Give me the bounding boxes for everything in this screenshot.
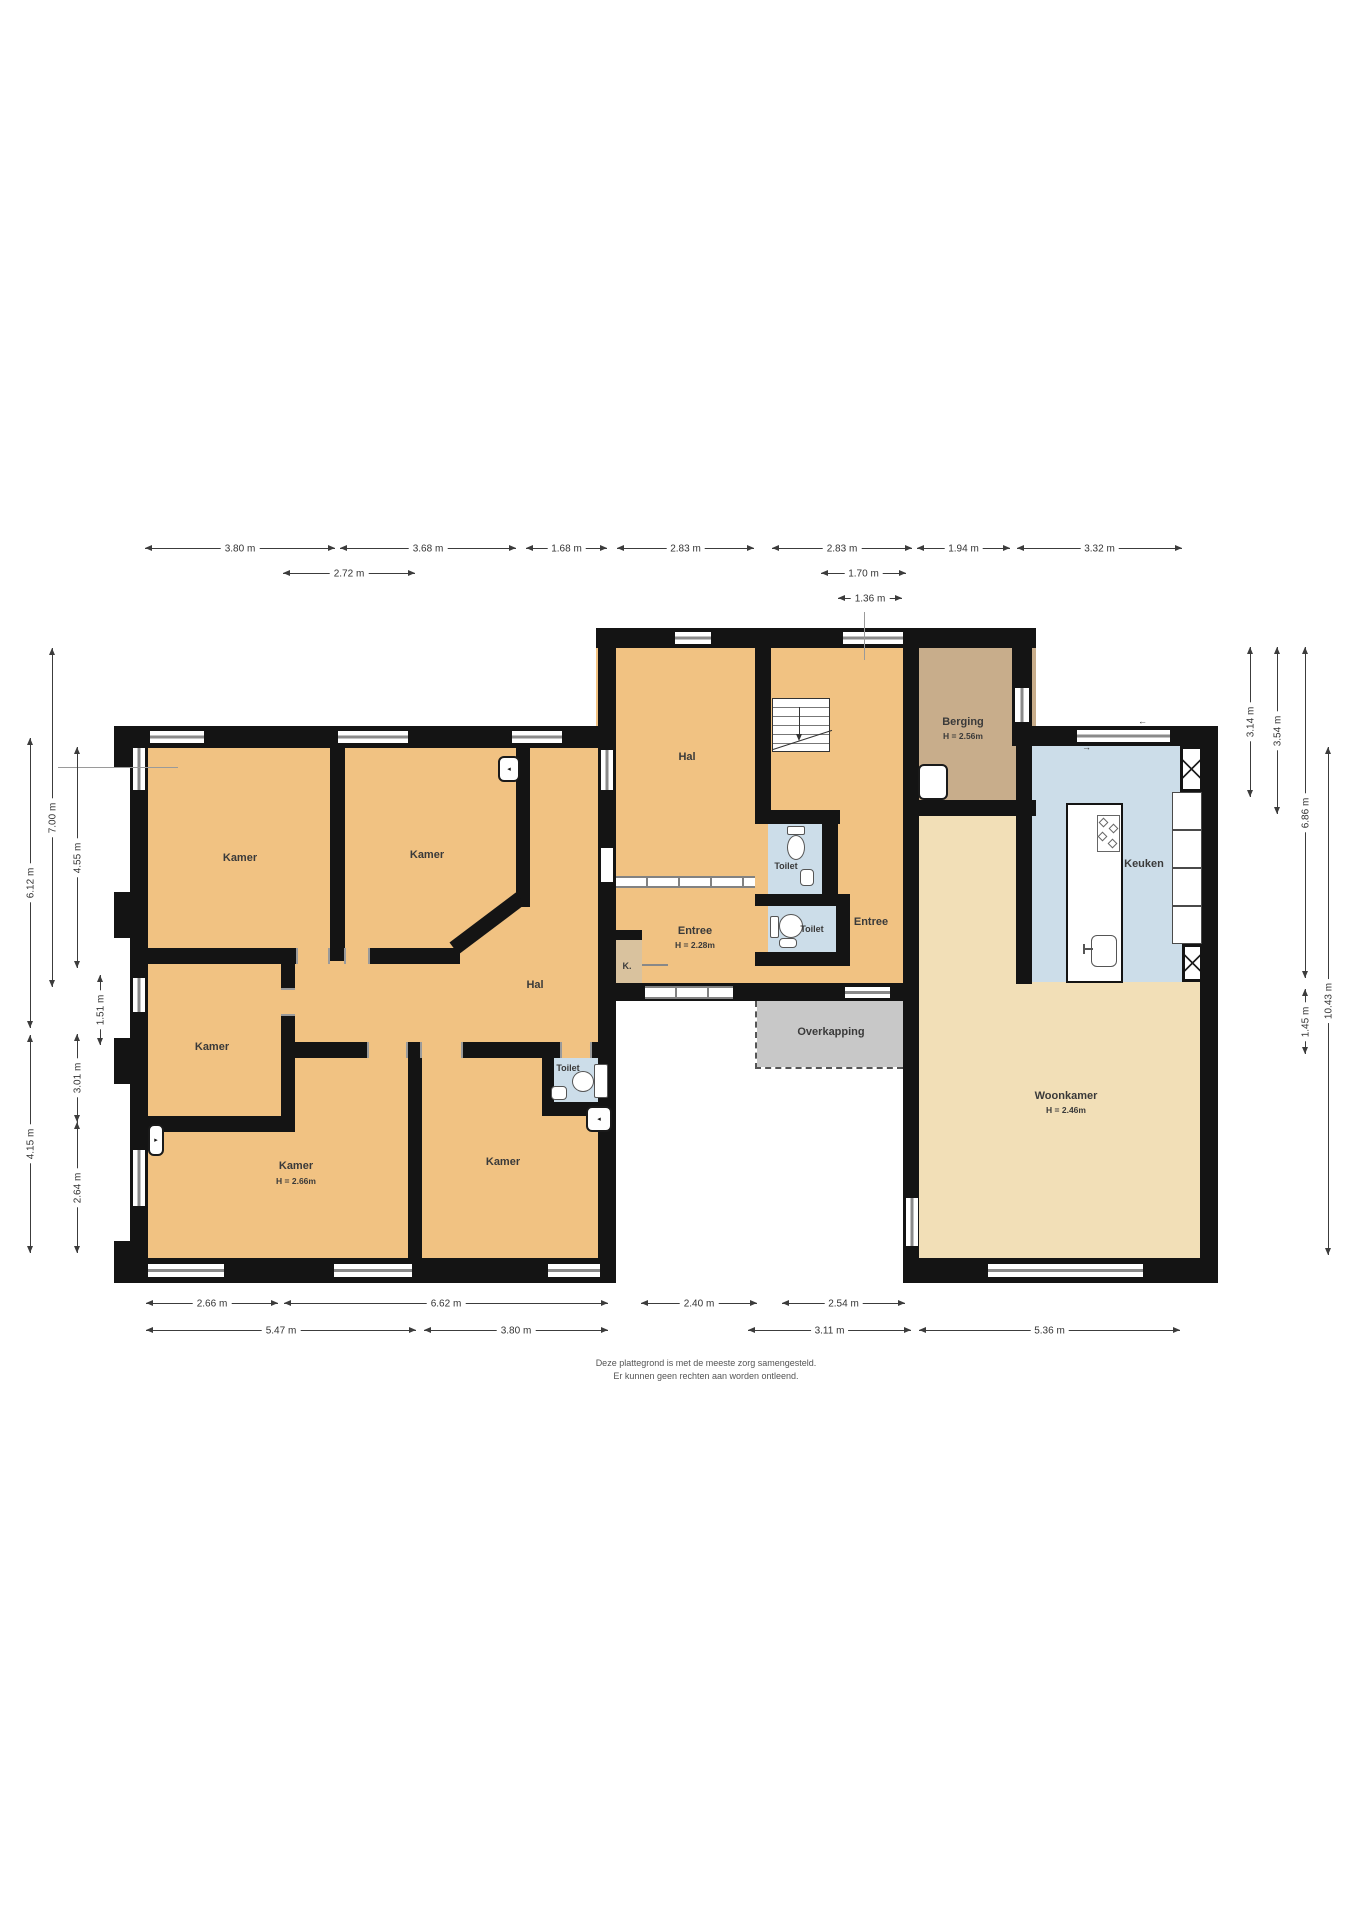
dimension-label: 1.68 m <box>547 544 586 555</box>
stair-direction-arrow-icon <box>799 707 800 735</box>
dimension-label: 3.32 m <box>1080 544 1119 555</box>
dimension: 6.86 m <box>1305 647 1306 978</box>
door-opening <box>601 848 613 882</box>
window <box>338 731 408 743</box>
dimension-label: 6.12 m <box>26 864 37 903</box>
room-label-entree: Entree <box>678 925 712 937</box>
dimension-label: 6.62 m <box>427 1299 466 1310</box>
disclaimer-line-1: Deze plattegrond is met de meeste zorg s… <box>546 1357 866 1370</box>
window <box>150 731 204 743</box>
room-label-kamer: Kamer <box>410 849 444 861</box>
disclaimer-line-2: Er kunnen geen rechten aan worden ontlee… <box>546 1370 866 1383</box>
stair-cut-line <box>773 730 832 750</box>
wall <box>408 1042 422 1258</box>
dimension: 4.15 m <box>30 1035 31 1253</box>
shaft-icon <box>1180 746 1203 792</box>
dimension: 1.70 m <box>821 573 906 574</box>
dimension-label: 7.00 m <box>48 798 59 837</box>
window <box>334 1264 412 1277</box>
dimension: 1.45 m <box>1305 989 1306 1054</box>
room-label-kast: K. <box>623 961 632 971</box>
kitchen-cabinet <box>1172 868 1202 906</box>
dimension: 2.40 m <box>641 1303 757 1304</box>
room-label-overkapping: Overkapping <box>797 1026 864 1038</box>
wall <box>330 746 345 961</box>
room-height-label: H = 2.56m <box>943 731 983 741</box>
door-opening <box>281 988 295 1016</box>
toilet-tank-icon <box>594 1064 608 1098</box>
window <box>512 731 562 743</box>
stove-icon <box>1097 815 1120 852</box>
leader-line <box>58 767 178 768</box>
toilet-bowl-icon <box>572 1071 594 1092</box>
door-icon: ◂ <box>498 756 520 782</box>
dimension: 4.55 m <box>77 747 78 968</box>
wall <box>755 648 771 824</box>
wall-pier <box>114 892 148 938</box>
disclaimer: Deze plattegrond is met de meeste zorg s… <box>546 1357 866 1383</box>
wall <box>370 948 460 964</box>
dimension-label: 6.86 m <box>1301 793 1312 832</box>
wall <box>147 1116 295 1132</box>
dimension-label: 10.43 m <box>1324 979 1335 1023</box>
dimension: 3.32 m <box>1017 548 1182 549</box>
glass-partition <box>616 876 755 888</box>
dimension-label: 3.54 m <box>1273 711 1284 750</box>
dimension-label: 2.83 m <box>823 544 862 555</box>
toilet-bowl-icon <box>787 835 805 860</box>
dimension: 2.83 m <box>617 548 754 549</box>
room-height-label: H = 2.66m <box>276 1176 316 1186</box>
room-label-hal: Hal <box>678 751 695 763</box>
kitchen-cabinet <box>1172 792 1202 830</box>
dimension: 5.36 m <box>919 1330 1180 1331</box>
window <box>133 1150 145 1206</box>
dimension: 1.36 m <box>838 598 902 599</box>
dimension-label: 4.15 m <box>26 1125 37 1164</box>
window <box>601 750 613 790</box>
room-label-keuken: Keuken <box>1124 858 1164 870</box>
dimension-label: 1.36 m <box>851 594 890 605</box>
dimension-label: 2.40 m <box>680 1299 719 1310</box>
wall <box>596 628 1036 648</box>
door-opening <box>560 1042 592 1058</box>
wall-pier <box>114 1038 148 1084</box>
closet-door-line <box>642 964 668 966</box>
door-opening <box>296 948 330 964</box>
burner-icon <box>1109 824 1119 834</box>
room-label-hal: Hal <box>526 979 543 991</box>
toilet-tank-icon <box>770 916 779 938</box>
dimension: 1.94 m <box>917 548 1010 549</box>
dimension: 2.66 m <box>146 1303 278 1304</box>
wall <box>755 952 850 966</box>
window <box>148 1264 224 1277</box>
room-label-woonkamer: Woonkamer <box>1035 1090 1098 1102</box>
dimension: 7.00 m <box>52 648 53 987</box>
wall <box>1200 726 1218 1283</box>
dimension-label: 1.51 m <box>96 991 107 1030</box>
shaft-icon <box>1182 944 1203 982</box>
wall <box>1016 746 1032 984</box>
dimension: 2.72 m <box>283 573 415 574</box>
dimension: 3.68 m <box>340 548 516 549</box>
door-icon <box>918 764 948 800</box>
dimension: 6.12 m <box>30 738 31 1028</box>
dimension: 1.68 m <box>526 548 607 549</box>
kitchen-sink-icon <box>1091 935 1117 967</box>
faucet-icon <box>1083 944 1085 954</box>
dimension: 3.80 m <box>145 548 335 549</box>
dimension: 1.51 m <box>100 975 101 1045</box>
sliding-door-arrow-icon: ← <box>1138 716 1147 726</box>
door-icon: ▸ <box>148 1124 164 1156</box>
wall <box>822 810 838 906</box>
dimension: 6.62 m <box>284 1303 608 1304</box>
room-label-entree: Entree <box>854 916 888 928</box>
room-label-kamer: Kamer <box>223 852 257 864</box>
window <box>548 1264 600 1277</box>
wall <box>616 930 642 940</box>
dimension-label: 1.45 m <box>1301 1002 1312 1041</box>
room-height-label: H = 2.46m <box>1046 1105 1086 1115</box>
corner-sink-icon <box>800 869 814 886</box>
dimension-label: 3.80 m <box>497 1326 536 1337</box>
door-opening <box>420 1042 463 1058</box>
dimension-label: 2.83 m <box>666 544 705 555</box>
wall <box>755 894 840 906</box>
window <box>133 978 145 1012</box>
dimension-label: 3.68 m <box>409 544 448 555</box>
dimension: 3.01 m <box>77 1034 78 1122</box>
wall-pier <box>114 1241 148 1283</box>
dimension: 2.64 m <box>77 1122 78 1253</box>
dimension-label: 3.80 m <box>221 544 260 555</box>
french-door <box>645 986 733 999</box>
room-height-label: H = 2.28m <box>675 940 715 950</box>
room-label-kamer: Kamer <box>195 1041 229 1053</box>
window <box>845 987 890 998</box>
sliding-door-arrow-icon: → <box>1082 742 1091 752</box>
dimension: 3.14 m <box>1250 647 1251 797</box>
window <box>675 632 711 644</box>
wall <box>903 628 919 1283</box>
window <box>843 632 903 644</box>
kitchen-cabinet <box>1172 906 1202 944</box>
dimension: 3.54 m <box>1277 647 1278 814</box>
room-label-kamer: Kamer <box>279 1160 313 1172</box>
dimension-label: 5.47 m <box>262 1326 301 1337</box>
dimension-label: 2.64 m <box>73 1168 84 1207</box>
window <box>133 748 145 790</box>
leader-line <box>864 612 865 660</box>
room-label-berging: Berging <box>942 716 984 728</box>
door-icon: ◂ <box>586 1106 612 1132</box>
room-label-toilet: Toilet <box>774 861 797 871</box>
corner-sink-icon <box>779 938 797 948</box>
burner-icon <box>1098 832 1108 842</box>
dimension-label: 5.36 m <box>1030 1326 1069 1337</box>
dimension-label: 2.66 m <box>193 1299 232 1310</box>
kitchen-cabinet <box>1172 830 1202 868</box>
window <box>906 1198 918 1246</box>
dimension: 10.43 m <box>1328 747 1329 1255</box>
west-wing-floor <box>130 728 616 1283</box>
sliding-door <box>1077 730 1170 742</box>
wall <box>281 964 295 1116</box>
dimension-label: 1.94 m <box>944 544 983 555</box>
toilet-tank-icon <box>787 826 805 835</box>
dimension-label: 2.54 m <box>824 1299 863 1310</box>
burner-icon <box>1099 818 1109 828</box>
wall-shared <box>598 628 616 1283</box>
dimension-label: 3.01 m <box>73 1059 84 1098</box>
corner-sink-icon <box>551 1086 567 1100</box>
room-label-toilet: Toilet <box>800 924 823 934</box>
dimension-label: 3.11 m <box>811 1326 849 1337</box>
dimension: 3.80 m <box>424 1330 608 1331</box>
window <box>1015 688 1029 722</box>
dimension-label: 3.14 m <box>1246 703 1257 742</box>
burner-icon <box>1108 839 1118 849</box>
dimension: 5.47 m <box>146 1330 416 1331</box>
floorplan-page: ← → ◂ ▸ ◂ Kamer <box>0 0 1358 1920</box>
dimension: 3.11 m <box>748 1330 911 1331</box>
room-label-kamer: Kamer <box>486 1156 520 1168</box>
dimension-label: 1.70 m <box>844 569 883 580</box>
door-opening <box>344 948 370 964</box>
dimension-label: 2.72 m <box>330 569 369 580</box>
dimension: 2.54 m <box>782 1303 905 1304</box>
dimension: 2.83 m <box>772 548 912 549</box>
door-opening <box>367 1042 408 1058</box>
stairs-icon <box>772 698 830 752</box>
dimension-label: 4.55 m <box>73 838 84 877</box>
window <box>988 1264 1143 1277</box>
room-label-toilet: Toilet <box>556 1063 579 1073</box>
